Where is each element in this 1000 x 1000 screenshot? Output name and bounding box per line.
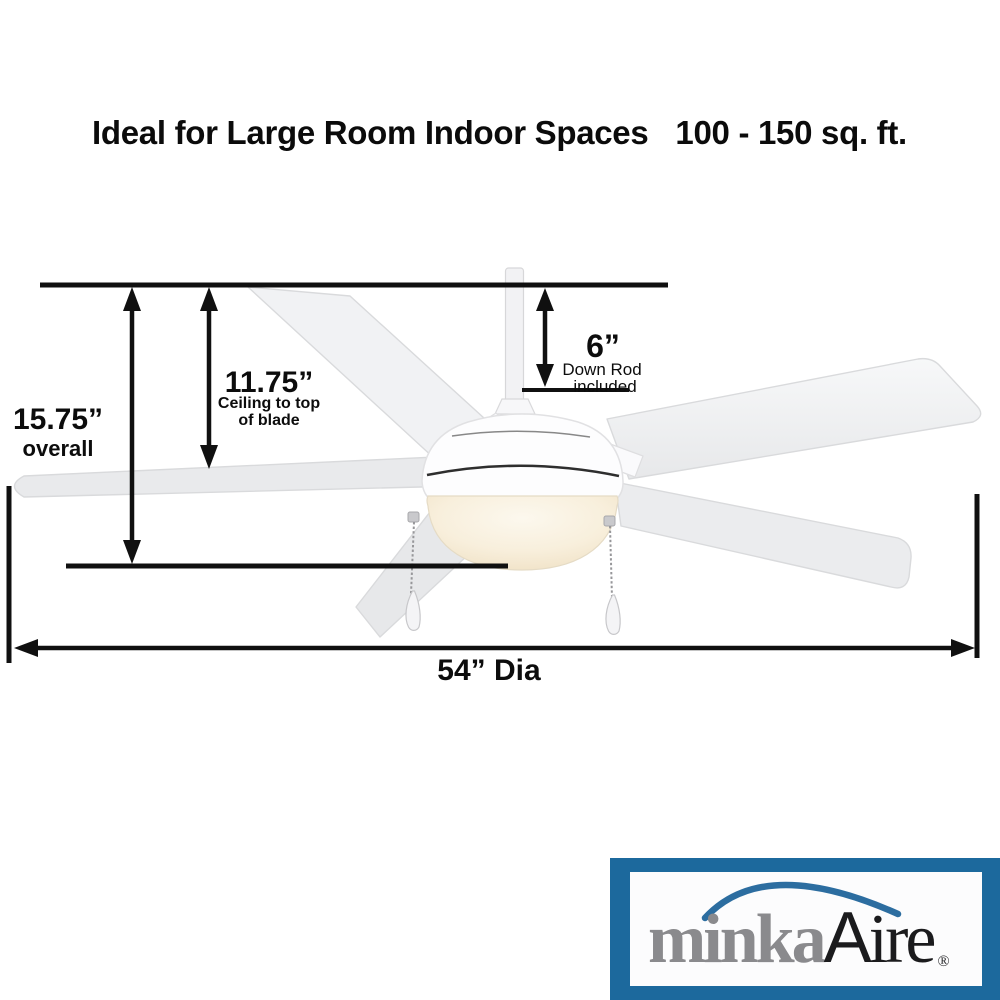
fan-blade-lower-right — [615, 482, 911, 588]
ceiling-to-blade-label-line1: Ceiling to top — [218, 396, 320, 412]
chain-mount-left — [408, 512, 419, 522]
downrod-label-line1: Down Rod — [562, 361, 641, 378]
brand-logo-inner: minkaAire® — [630, 872, 982, 986]
overall-height-value: 15.75” — [13, 405, 103, 435]
fan-blade-upper-right — [607, 359, 981, 479]
arrow-up-icon — [123, 287, 141, 311]
arrow-up-icon — [536, 288, 554, 311]
ceiling-fan — [15, 268, 981, 637]
registered-trademark-icon: ® — [937, 954, 949, 970]
brand-word-aire-initial: A — [824, 902, 869, 974]
title-size-range: 100 - 150 sq. ft. — [675, 114, 907, 152]
chain-mount-right — [604, 516, 615, 526]
arrow-down-icon — [536, 364, 554, 387]
brand-word-minka: minka — [648, 905, 824, 975]
fan-blade-left — [15, 456, 461, 497]
downrod-value: 6” — [586, 330, 620, 362]
page-title: Ideal for Large Room Indoor Spaces 100 -… — [92, 114, 907, 152]
ceiling-to-blade-label-line2: of blade — [238, 413, 299, 429]
overall-height-label: overall — [23, 438, 94, 460]
downrod-label-line2: included — [573, 378, 636, 395]
brand-logo: minkaAire® — [610, 858, 1000, 1000]
pull-chain-right — [610, 526, 612, 598]
ceiling-to-blade-value: 11.75” — [225, 368, 313, 398]
brand-word-aire-rest: ire — [869, 905, 934, 975]
diameter-value: 54” Dia — [437, 656, 540, 686]
arrow-up-icon — [200, 287, 218, 311]
arrow-right-icon — [951, 639, 975, 657]
title-main: Ideal for Large Room Indoor Spaces — [92, 114, 648, 152]
downrod-coupling — [495, 399, 535, 414]
fan-downrod — [506, 268, 524, 402]
arrow-down-icon — [123, 540, 141, 564]
arrow-down-icon — [200, 445, 218, 469]
arrow-left-icon — [14, 639, 38, 657]
brand-wordmark: minkaAire® — [648, 902, 946, 975]
pull-chain-weight-right — [606, 595, 620, 634]
product-dimension-diagram: Ideal for Large Room Indoor Spaces 100 -… — [0, 0, 1000, 1000]
fan-motor-housing — [422, 414, 623, 507]
